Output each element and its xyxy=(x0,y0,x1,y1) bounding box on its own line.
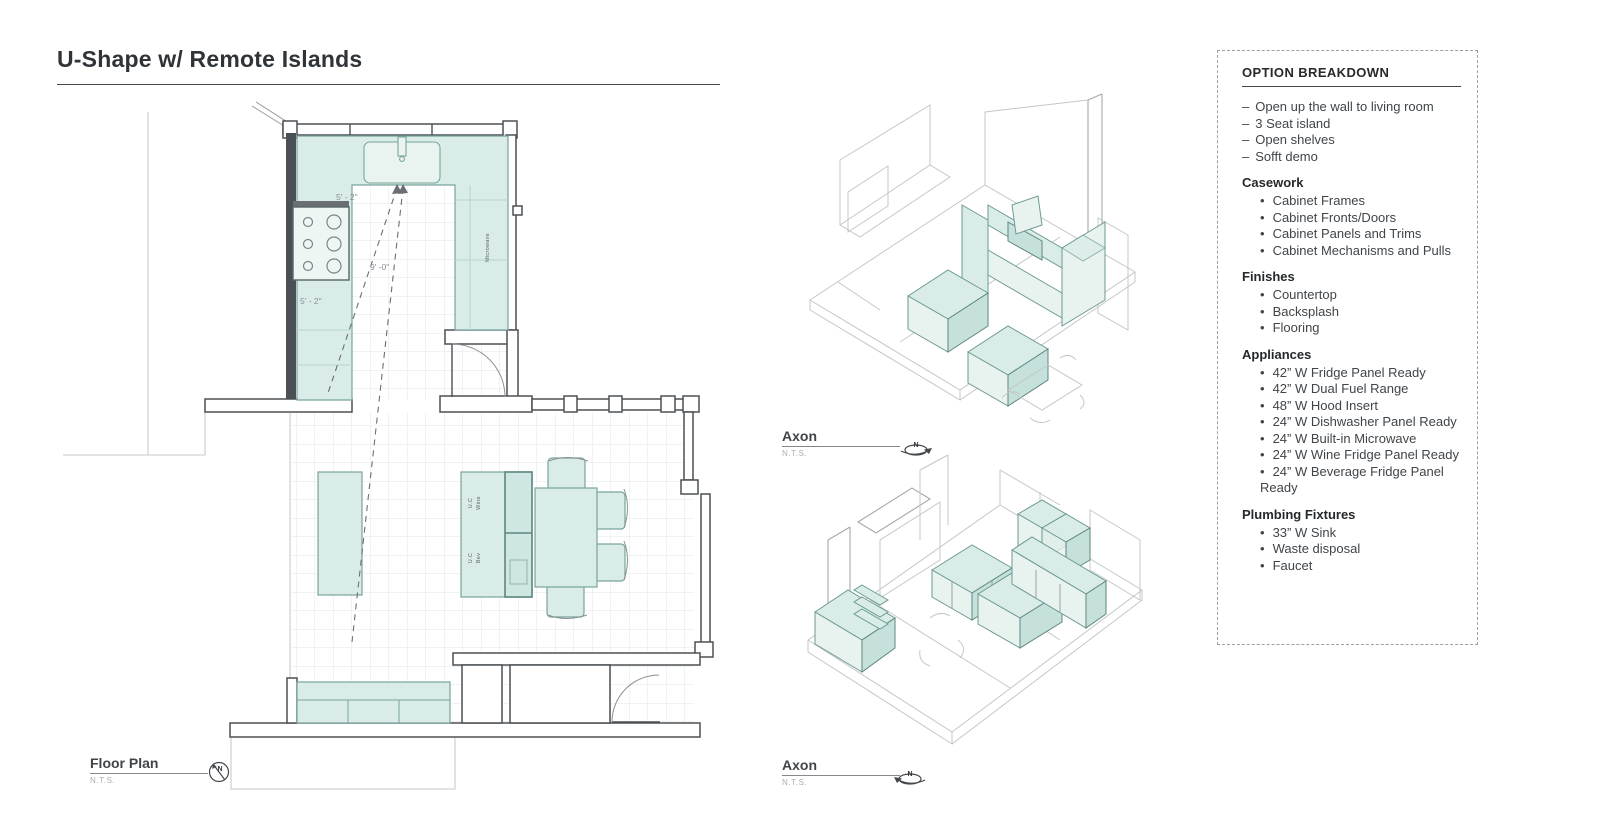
list-item: •Cabinet Panels and Trims xyxy=(1258,226,1461,243)
list-item: •Cabinet Mechanisms and Pulls xyxy=(1258,243,1461,260)
list-item: •Cabinet Frames xyxy=(1258,193,1461,210)
axon-bottom-table xyxy=(920,613,964,666)
axon-bottom-label-rule xyxy=(782,775,900,776)
plumbing-list: •33” W Sink •Waste disposal •Faucet xyxy=(1242,525,1461,575)
list-item: •Waste disposal xyxy=(1258,541,1461,558)
dim-left: 5' - 2" xyxy=(300,296,322,306)
section-heading: Appliances xyxy=(1242,347,1461,363)
list-item: –3 Seat island xyxy=(1242,116,1461,133)
section-heading: Casework xyxy=(1242,175,1461,191)
axon-top-drawing xyxy=(795,85,1145,420)
axon-top-label-text: Axon xyxy=(782,428,912,444)
list-item: •24” W Wine Fridge Panel Ready xyxy=(1258,447,1461,464)
casework-list: •Cabinet Frames •Cabinet Fronts/Doors •C… xyxy=(1242,193,1461,259)
title-underline xyxy=(57,84,720,85)
bench-cabinets xyxy=(297,682,450,723)
axon-bottom-scale-note: N.T.S. xyxy=(782,778,912,787)
option-notes-list: –Open up the wall to living room –3 Seat… xyxy=(1242,99,1461,165)
axon-bottom-left-counter xyxy=(815,585,895,672)
list-item: •Flooring xyxy=(1258,320,1461,337)
section-heading: Finishes xyxy=(1242,269,1461,285)
appliances-list: •42” W Fridge Panel Ready •42” W Dual Fu… xyxy=(1242,365,1461,497)
svg-text:Wine: Wine xyxy=(476,496,482,510)
axon-bottom-drawing xyxy=(795,450,1150,745)
microwave-label: Microwave xyxy=(485,233,491,262)
list-item: –Open shelves xyxy=(1242,132,1461,149)
island-left xyxy=(318,472,362,595)
floor-plan-label-text: Floor Plan xyxy=(90,755,220,771)
svg-text:U.C: U.C xyxy=(468,498,474,508)
floor-plan-drawing: 5' - 2" 9' -0" 5' - 2" Microwave U.C Win… xyxy=(55,95,745,805)
island-console xyxy=(461,472,532,597)
section-heading: Plumbing Fixtures xyxy=(1242,507,1461,523)
range-cooktop xyxy=(293,201,349,280)
axon-top-label: Axon N.T.S. xyxy=(782,428,912,458)
floor-plan-label: Floor Plan N.T.S. xyxy=(90,755,220,785)
list-item: •Faucet xyxy=(1258,558,1461,575)
page-title: U-Shape w/ Remote Islands xyxy=(57,46,362,73)
svg-text:N: N xyxy=(913,442,918,449)
list-item: •Cabinet Fronts/Doors xyxy=(1258,210,1461,227)
option-breakdown-panel: OPTION BREAKDOWN –Open up the wall to li… xyxy=(1217,50,1478,645)
sink xyxy=(364,137,440,183)
dim-top: 5' - 2" xyxy=(336,192,358,202)
axon-top-scale-note: N.T.S. xyxy=(782,449,912,458)
design-sheet: U-Shape w/ Remote Islands xyxy=(0,0,1600,819)
floor-plan-label-rule xyxy=(90,773,208,774)
svg-text:U.C: U.C xyxy=(468,553,474,563)
list-item: •24” W Beverage Fridge Panel Ready xyxy=(1258,464,1461,497)
list-item: •42” W Fridge Panel Ready xyxy=(1258,365,1461,382)
axon-bottom-label-text: Axon xyxy=(782,757,912,773)
list-item: •Countertop xyxy=(1258,287,1461,304)
option-breakdown-title: OPTION BREAKDOWN xyxy=(1242,65,1461,87)
floor-plan-scale-note: N.T.S. xyxy=(90,776,220,785)
list-item: •42” W Dual Fuel Range xyxy=(1258,381,1461,398)
list-item: •33” W Sink xyxy=(1258,525,1461,542)
svg-text:Bev: Bev xyxy=(476,553,482,563)
axon-bottom-label: Axon N.T.S. xyxy=(782,757,912,787)
list-item: •24” W Dishwasher Panel Ready xyxy=(1258,414,1461,431)
axon-top-label-rule xyxy=(782,446,900,447)
list-item: –Open up the wall to living room xyxy=(1242,99,1461,116)
dining-table xyxy=(535,488,597,587)
list-item: •48” W Hood Insert xyxy=(1258,398,1461,415)
dim-diag: 9' -0" xyxy=(370,262,389,272)
list-item: •24” W Built-in Microwave xyxy=(1258,431,1461,448)
finishes-list: •Countertop •Backsplash •Flooring xyxy=(1242,287,1461,337)
list-item: •Backsplash xyxy=(1258,304,1461,321)
list-item: –Sofft demo xyxy=(1242,149,1461,166)
